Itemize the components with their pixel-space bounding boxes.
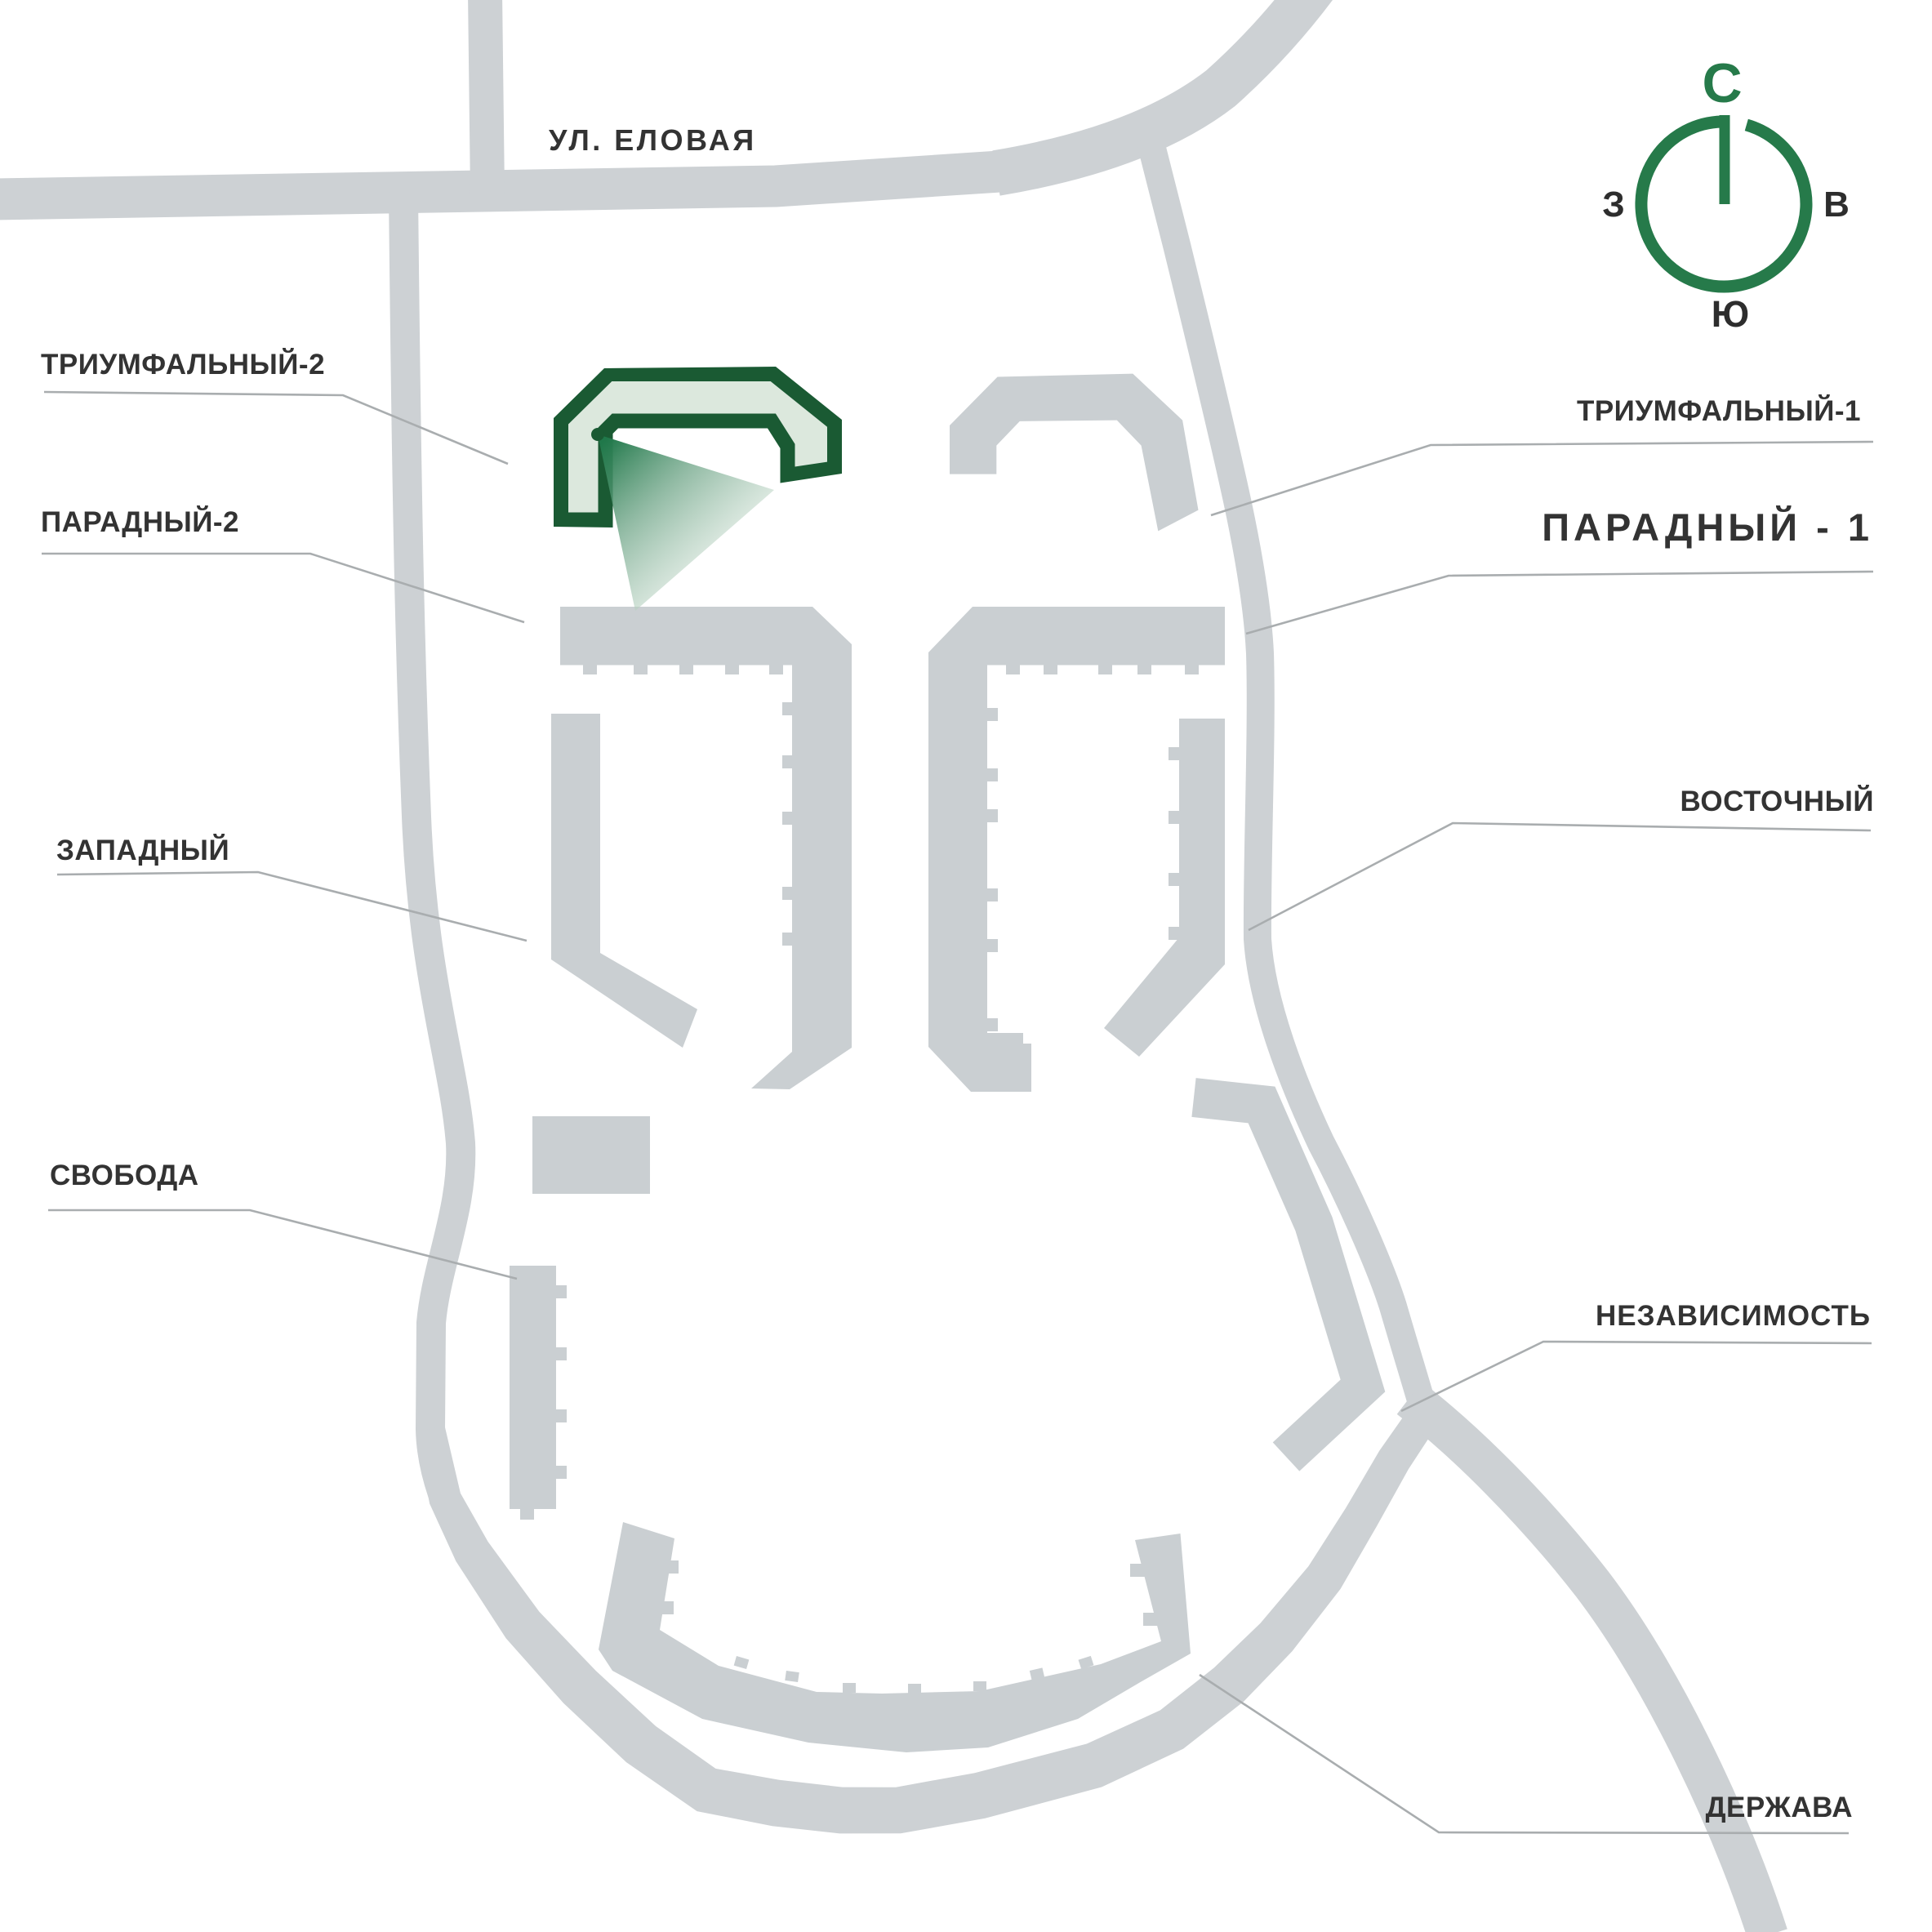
svg-text:ТРИУМФАЛЬНЫЙ-1: ТРИУМФАЛЬНЫЙ-1 [1577,394,1861,427]
svg-text:ПАРАДНЫЙ - 1: ПАРАДНЫЙ - 1 [1542,505,1873,549]
svg-text:УЛ. ЕЛОВАЯ: УЛ. ЕЛОВАЯ [549,123,757,157]
svg-text:Ю: Ю [1712,293,1749,335]
svg-text:ВОСТОЧНЫЙ: ВОСТОЧНЫЙ [1680,785,1874,817]
svg-text:ТРИУМФАЛЬНЫЙ-2: ТРИУМФАЛЬНЫЙ-2 [41,348,325,381]
svg-text:ДЕРЖАВА: ДЕРЖАВА [1706,1792,1853,1823]
svg-text:ПАРАДНЫЙ-2: ПАРАДНЫЙ-2 [41,505,239,538]
svg-text:НЕЗАВИСИМОСТЬ: НЕЗАВИСИМОСТЬ [1596,1300,1871,1332]
svg-text:СВОБОДА: СВОБОДА [50,1160,199,1191]
svg-text:В: В [1823,185,1850,225]
svg-text:С: С [1702,52,1742,114]
svg-text:З: З [1602,185,1625,225]
svg-text:ЗАПАДНЫЙ: ЗАПАДНЫЙ [56,834,229,866]
